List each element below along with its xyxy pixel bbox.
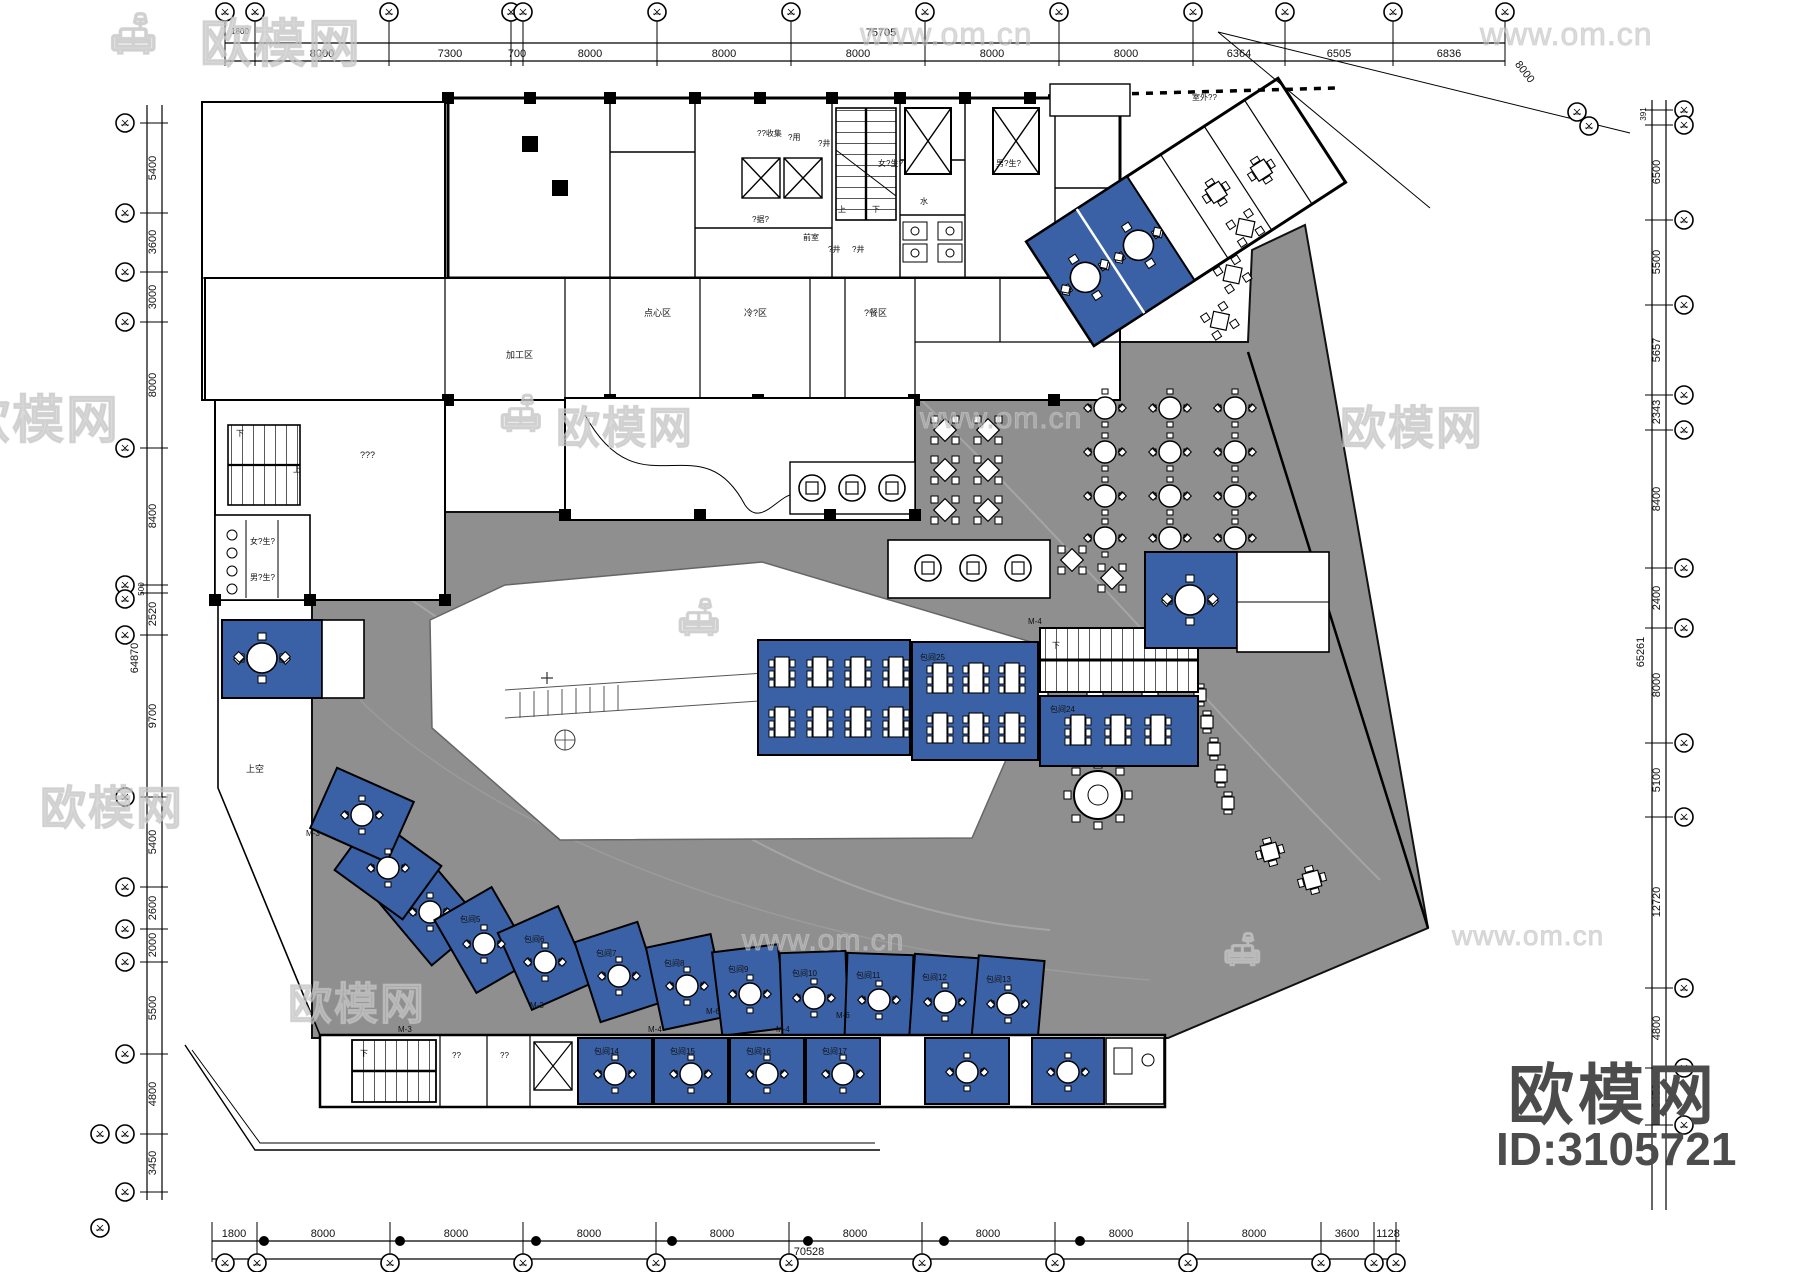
dim-top: 8000 [712, 48, 736, 60]
dim-left: 4800 [147, 1082, 159, 1106]
dim-bottom: 3600 [1335, 1228, 1359, 1240]
dim-left: 2000 [147, 933, 159, 957]
dim-left: 3600 [147, 230, 159, 254]
dim-top: 7300 [438, 48, 462, 60]
label-up: 上 [838, 205, 846, 214]
room-label: 包间9 [728, 964, 749, 974]
dim-right: 4800 [1651, 1016, 1663, 1040]
label-collect: ??收集 [757, 128, 782, 138]
dim-total-left: 64870 [129, 643, 141, 674]
room-label: 包间17 [822, 1046, 847, 1056]
label-water: 水 [920, 196, 928, 206]
dim-left: 5400 [147, 830, 159, 854]
room-label: 包间8 [664, 958, 685, 968]
label-outdoor: 室外?? [1192, 92, 1217, 102]
mid-band-rooms [205, 278, 1120, 406]
room-label: 包间13 [986, 974, 1011, 984]
room-label: 包间25 [920, 652, 945, 662]
dim-total-right: 65261 [1635, 637, 1647, 668]
dim-top: 8000 [310, 48, 334, 60]
dim-bottom: 8000 [710, 1228, 734, 1240]
dim-top: 6505 [1327, 48, 1351, 60]
dim-right: 391 [1639, 107, 1648, 121]
label-down: 下 [1052, 641, 1060, 650]
dim-diagonal: 8000 [1512, 59, 1537, 86]
banquet-round-table [1064, 761, 1132, 829]
dim-bottom: 8000 [1109, 1228, 1133, 1240]
dim-right: 5657 [1651, 338, 1663, 362]
room-label: 包间10 [792, 968, 817, 978]
dimension-strip-left: 5400 3600 3000 8000 8400 500 2520 9700 5… [91, 105, 168, 1237]
label-female-wc: 女?生? [878, 158, 903, 168]
label-shaft: ?井 [852, 244, 864, 254]
door-tag: M-3 [530, 1001, 544, 1010]
label-down: 下 [872, 205, 880, 214]
dim-left: 9700 [147, 704, 159, 728]
dim-left: 2520 [147, 602, 159, 626]
door-tag: M-4 [1028, 617, 1042, 626]
dim-left: 2600 [147, 896, 159, 920]
dim-right: 5100 [1651, 768, 1663, 792]
room-label: 包间12 [922, 972, 947, 982]
label-process: 加工区 [506, 350, 533, 360]
label-unknown: ??? [360, 450, 375, 460]
south-strip [185, 1035, 1165, 1246]
dim-left: 5400 [147, 156, 159, 180]
dim-left: 8000 [147, 373, 159, 397]
dim-bottom: 8000 [843, 1228, 867, 1240]
room-label: 包间11 [856, 970, 881, 980]
door-tag: M-3 [398, 1025, 412, 1034]
dim-top-pre: 1800 [231, 27, 249, 36]
label-storage: ?据? [752, 214, 769, 224]
door-tag: M-4 [648, 1025, 662, 1034]
label-dessert: 点心区 [644, 308, 671, 318]
room-label: 包间15 [670, 1046, 695, 1056]
dim-total-bottom: 70528 [794, 1246, 825, 1258]
dim-right: 5500 [1651, 250, 1663, 274]
dim-right: 6500 [1651, 160, 1663, 184]
label-room-q: ?? [452, 1051, 461, 1060]
dim-left: 5500 [147, 996, 159, 1020]
label-room-q: ?? [500, 1051, 509, 1060]
dim-left: 3450 [147, 1151, 159, 1175]
dim-bottom: 8000 [444, 1228, 468, 1240]
room-label: 包间16 [746, 1046, 771, 1056]
dim-right: 8000 [1651, 673, 1663, 697]
left-stair-wc-block [209, 400, 451, 606]
floorplan-canvas: 欧模网 🛋 www.om.cn www.om.cn 欧模网 🛋 欧模网 www.… [0, 0, 1800, 1272]
dim-top: 8000 [980, 48, 1004, 60]
door-tag: M-6 [836, 1011, 850, 1020]
dim-bottom: 1128 [1376, 1228, 1400, 1240]
label-male-wc: 男?生? [996, 158, 1021, 168]
label-front-room: 前室 [803, 232, 819, 242]
label-prep: ?餐区 [864, 307, 887, 318]
kitchen-block [442, 92, 1120, 278]
door-tag: M-6 [706, 1007, 720, 1016]
door-tag: M-4 [776, 1025, 790, 1034]
dim-bottom: 8000 [577, 1228, 601, 1240]
dim-top: 8000 [846, 48, 870, 60]
dim-right: 8400 [1651, 487, 1663, 511]
label-up: 上 [293, 465, 301, 474]
dimension-strip-bottom: 1800 8000 8000 8000 8000 8000 8000 8000 … [212, 1222, 1405, 1272]
room-label: 包间6 [524, 934, 545, 944]
dim-right: 2400 [1651, 586, 1663, 610]
dim-right: 12720 [1651, 887, 1663, 918]
label-cold: 冷?区 [744, 307, 767, 318]
dim-right: 2343 [1651, 400, 1663, 424]
door-tag: M-3 [306, 829, 320, 838]
label-male-wc: 男?生? [250, 572, 275, 582]
label-shaft: ?井 [828, 244, 840, 254]
room-label: 包间14 [594, 1046, 619, 1056]
dim-bottom: 8000 [311, 1228, 335, 1240]
dim-top: 6364 [1227, 48, 1251, 60]
label-shaft: ?井 [818, 138, 830, 148]
dim-left: 500 [137, 582, 146, 596]
dim-top: 8000 [578, 48, 602, 60]
label-void: 上空 [246, 763, 264, 774]
dim-bottom: 8000 [976, 1228, 1000, 1240]
dim-top: 700 [508, 48, 526, 60]
dim-total-top: 75705 [866, 27, 897, 39]
label-down: 下 [236, 429, 244, 438]
room-label: 包间24 [1050, 704, 1075, 714]
dim-left: 3000 [147, 285, 159, 309]
dim-bottom: 8000 [1242, 1228, 1266, 1240]
dim-top: 6836 [1437, 48, 1461, 60]
dim-left: 8400 [147, 504, 159, 528]
room-label: 包间7 [596, 948, 617, 958]
dim-bottom: 1800 [222, 1228, 246, 1240]
dim-top: 8000 [1114, 48, 1138, 60]
dimension-strip-top: 75705 1800 8000 7300 700 8000 8000 8000 … [216, 3, 1537, 85]
label-female-wc: 女?生? [250, 536, 275, 546]
room-label: 包间5 [460, 914, 481, 924]
label-use: ?用 [788, 133, 800, 142]
footer-id: ID:3105721 [1496, 1122, 1736, 1176]
label-down: 下 [360, 1049, 368, 1058]
